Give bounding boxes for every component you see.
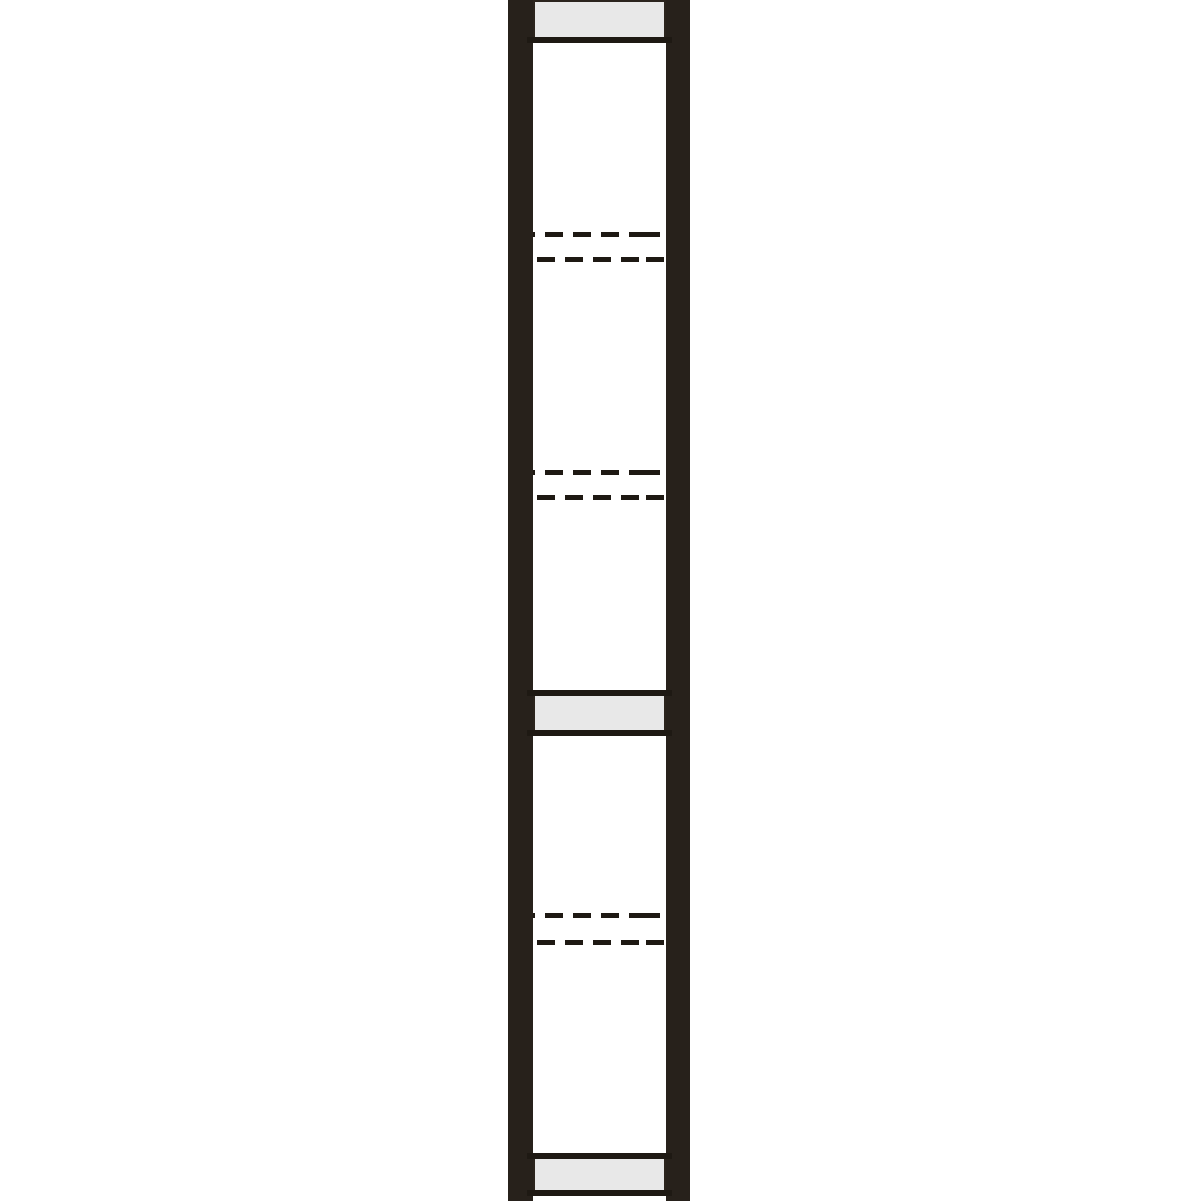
lower-hidden-edges-bottom-line [533, 940, 670, 945]
lower-hidden-edges-top-line [533, 913, 660, 918]
mid-rail-panel [533, 696, 666, 730]
mid-panel-top-edge [527, 690, 672, 696]
drawing-canvas [0, 0, 1201, 1201]
top-panel-bottom-edge [527, 37, 672, 43]
middle-hidden-edges-top-line [533, 470, 660, 475]
middle-hidden-edges-bottom-line [533, 495, 670, 500]
upper-hidden-edges-bottom-line [533, 257, 670, 262]
bottom-panel-top-edge [527, 1153, 672, 1159]
mid-panel-bottom-edge [527, 730, 672, 736]
top-end-panel [533, 0, 666, 37]
left-stile [508, 0, 533, 1201]
upper-hidden-edges-top-line [533, 232, 660, 237]
bottom-panel-bottom-edge [527, 1190, 672, 1196]
bottom-end-panel [533, 1159, 666, 1190]
right-stile [666, 0, 690, 1201]
